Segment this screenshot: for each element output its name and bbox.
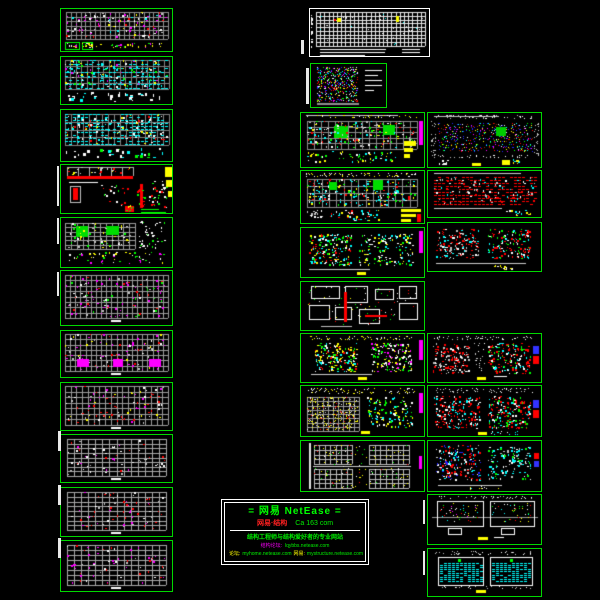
sheet-frame-L4-drawing bbox=[61, 165, 172, 213]
sheet-frame-L10 bbox=[60, 487, 173, 537]
sheet-edge-strip bbox=[423, 551, 425, 575]
sheet-frame-R5-drawing bbox=[301, 171, 424, 223]
sheet-frame-R6 bbox=[427, 170, 542, 218]
sheet-frame-L3 bbox=[60, 109, 173, 162]
sheet-frame-R9R bbox=[427, 333, 542, 383]
brand-subtitle-cn: 网易·结构 bbox=[257, 520, 287, 527]
sheet-frame-R13 bbox=[427, 548, 542, 597]
sheet-frame-R11L-drawing bbox=[301, 441, 424, 491]
forum-url: lqybbs.netease.com bbox=[285, 543, 329, 549]
contact-url-2: mystructure.netease.com bbox=[307, 551, 363, 557]
brand-subtitle-url: Ca 163 com bbox=[295, 520, 333, 527]
sheet-frame-R8 bbox=[300, 281, 425, 331]
forum-label: 结构论坛: bbox=[261, 543, 282, 549]
sheet-frame-R5 bbox=[300, 170, 425, 224]
sheet-edge-strip bbox=[57, 166, 59, 206]
sheet-frame-R2 bbox=[310, 63, 387, 108]
sheet-edge-strip bbox=[57, 218, 59, 244]
sheet-edge-strip bbox=[57, 272, 59, 296]
title-block-divider bbox=[230, 530, 361, 531]
contact-label-1: 论坛: bbox=[229, 551, 240, 557]
sheet-frame-R7R bbox=[427, 222, 542, 272]
title-block-inner: = 网易 NetEase = 网易·结构Ca 163 com 结构工程师与结构爱… bbox=[224, 502, 366, 562]
sheet-frame-R11R bbox=[427, 440, 542, 492]
sheet-frame-L1 bbox=[60, 8, 173, 52]
sheet-frame-L4 bbox=[60, 164, 173, 214]
sheet-frame-R10R bbox=[427, 385, 542, 437]
sheet-frame-R4 bbox=[427, 112, 542, 168]
sheet-frame-L7 bbox=[60, 330, 173, 378]
sheet-frame-L3-drawing bbox=[61, 110, 172, 161]
sheet-frame-R6-drawing bbox=[428, 171, 541, 217]
sheet-edge-strip bbox=[306, 68, 309, 104]
sheet-frame-L2 bbox=[60, 56, 173, 105]
sheet-frame-R7L bbox=[300, 227, 425, 278]
sheet-frame-R11R-drawing bbox=[428, 441, 541, 491]
sheet-frame-R10R-drawing bbox=[428, 386, 541, 436]
sheet-frame-R1-drawing bbox=[310, 9, 429, 56]
sheet-frame-L2-drawing bbox=[61, 57, 172, 104]
sheet-frame-R11L bbox=[300, 440, 425, 492]
sheet-frame-R10L bbox=[300, 385, 425, 437]
contact-label-2: 网易: bbox=[294, 551, 305, 557]
sheet-frame-L1-drawing bbox=[61, 9, 172, 51]
sheet-edge-strip bbox=[423, 500, 425, 524]
sheet-edge-strip bbox=[301, 40, 304, 54]
sheet-frame-R9R-drawing bbox=[428, 334, 541, 382]
sheet-frame-R2-drawing bbox=[311, 64, 386, 107]
site-tagline: 结构工程师与结构爱好者的专业网站 bbox=[247, 535, 343, 541]
title-block: = 网易 NetEase = 网易·结构Ca 163 com 结构工程师与结构爱… bbox=[221, 499, 369, 565]
sheet-frame-R9L-drawing bbox=[301, 334, 424, 382]
sheet-frame-R12 bbox=[427, 494, 542, 545]
sheet-frame-R3-drawing bbox=[301, 113, 424, 167]
sheet-frame-L8-drawing bbox=[61, 383, 172, 430]
sheet-edge-strip bbox=[58, 431, 61, 451]
sheet-frame-R3 bbox=[300, 112, 425, 168]
sheet-frame-R1 bbox=[309, 8, 430, 57]
forum-line: 结构论坛:lqybbs.netease.com bbox=[261, 544, 330, 549]
sheet-frame-L9 bbox=[60, 434, 173, 483]
sheet-frame-L5-drawing bbox=[61, 218, 172, 267]
sheet-frame-R9L bbox=[300, 333, 425, 383]
sheet-frame-L6-drawing bbox=[61, 271, 172, 325]
sheet-frame-L7-drawing bbox=[61, 331, 172, 377]
brand-title: = 网易 NetEase = bbox=[248, 507, 341, 517]
sheet-frame-L6 bbox=[60, 270, 173, 326]
contact-url-1: myhome.netease.com bbox=[242, 551, 291, 557]
sheet-frame-L11 bbox=[60, 540, 173, 592]
sheet-edge-strip bbox=[58, 485, 61, 505]
sheet-frame-R7R-drawing bbox=[428, 223, 541, 271]
sheet-frame-L9-drawing bbox=[61, 435, 172, 482]
sheet-frame-R8-drawing bbox=[301, 282, 424, 330]
cad-sheet-canvas: = 网易 NetEase = 网易·结构Ca 163 com 结构工程师与结构爱… bbox=[0, 0, 600, 600]
sheet-frame-R10L-drawing bbox=[301, 386, 424, 436]
sheet-frame-L10-drawing bbox=[61, 488, 172, 536]
brand-subtitle: 网易·结构Ca 163 com bbox=[257, 520, 333, 527]
sheet-frame-R12-drawing bbox=[428, 495, 541, 544]
sheet-frame-R13-drawing bbox=[428, 549, 541, 596]
sheet-frame-R7L-drawing bbox=[301, 228, 424, 277]
sheet-edge-strip bbox=[58, 538, 61, 558]
sheet-frame-L11-drawing bbox=[61, 541, 172, 591]
sheet-frame-L5 bbox=[60, 217, 173, 268]
sheet-frame-R4-drawing bbox=[428, 113, 541, 167]
contact-line: 论坛:myhome.netease.com网易:mystructure.nete… bbox=[227, 552, 363, 557]
sheet-frame-L8 bbox=[60, 382, 173, 431]
